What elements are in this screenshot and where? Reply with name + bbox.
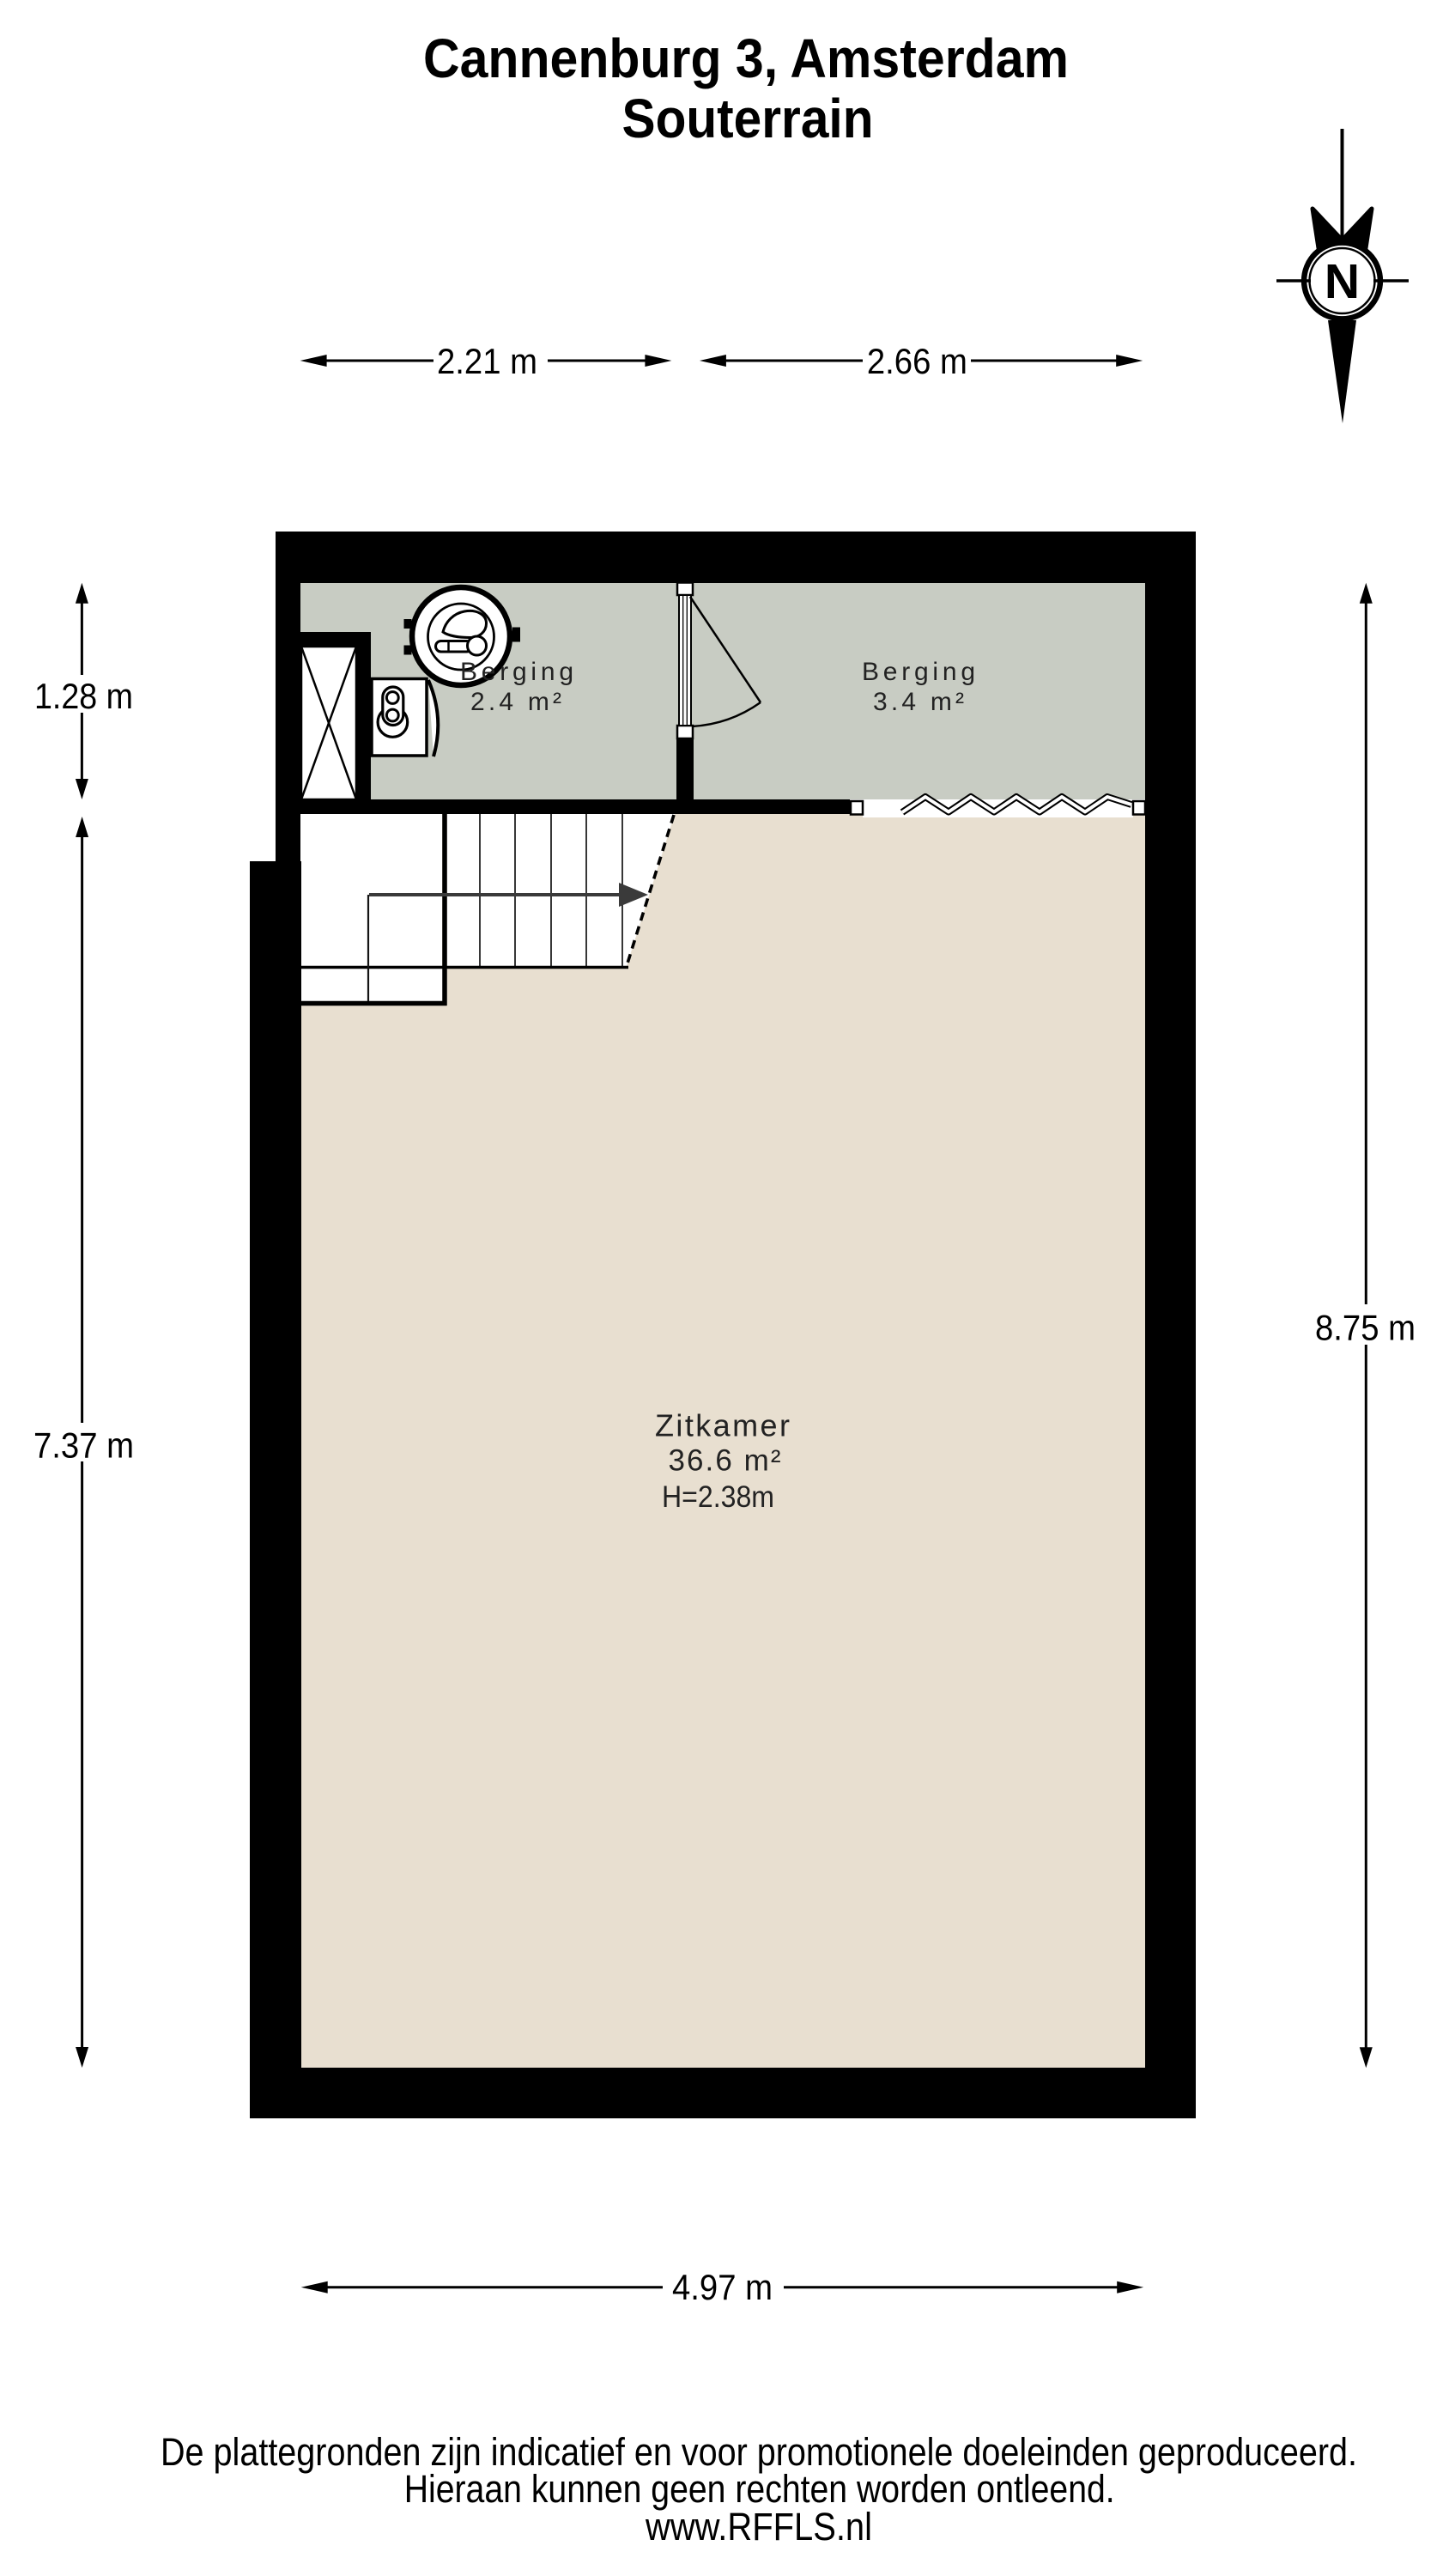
svg-text:N: N: [1325, 254, 1360, 309]
svg-text:Cannenburg 3, Amsterdam: Cannenburg 3, Amsterdam: [423, 27, 1069, 89]
svg-text:1.28 m: 1.28 m: [34, 676, 133, 716]
svg-text:8.75 m: 8.75 m: [1315, 1308, 1416, 1348]
svg-text:4.97 m: 4.97 m: [672, 2267, 773, 2307]
svg-text:Zitkamer: Zitkamer: [655, 1408, 790, 1443]
svg-text:2.21 m: 2.21 m: [437, 341, 537, 381]
svg-text:H=2.38m: H=2.38m: [662, 1480, 774, 1514]
svg-text:2.66 m: 2.66 m: [867, 341, 967, 381]
svg-text:www.RFFLS.nl: www.RFFLS.nl: [645, 2505, 872, 2549]
svg-text:Souterrain: Souterrain: [622, 88, 874, 149]
svg-text:7.37 m: 7.37 m: [33, 1425, 134, 1466]
